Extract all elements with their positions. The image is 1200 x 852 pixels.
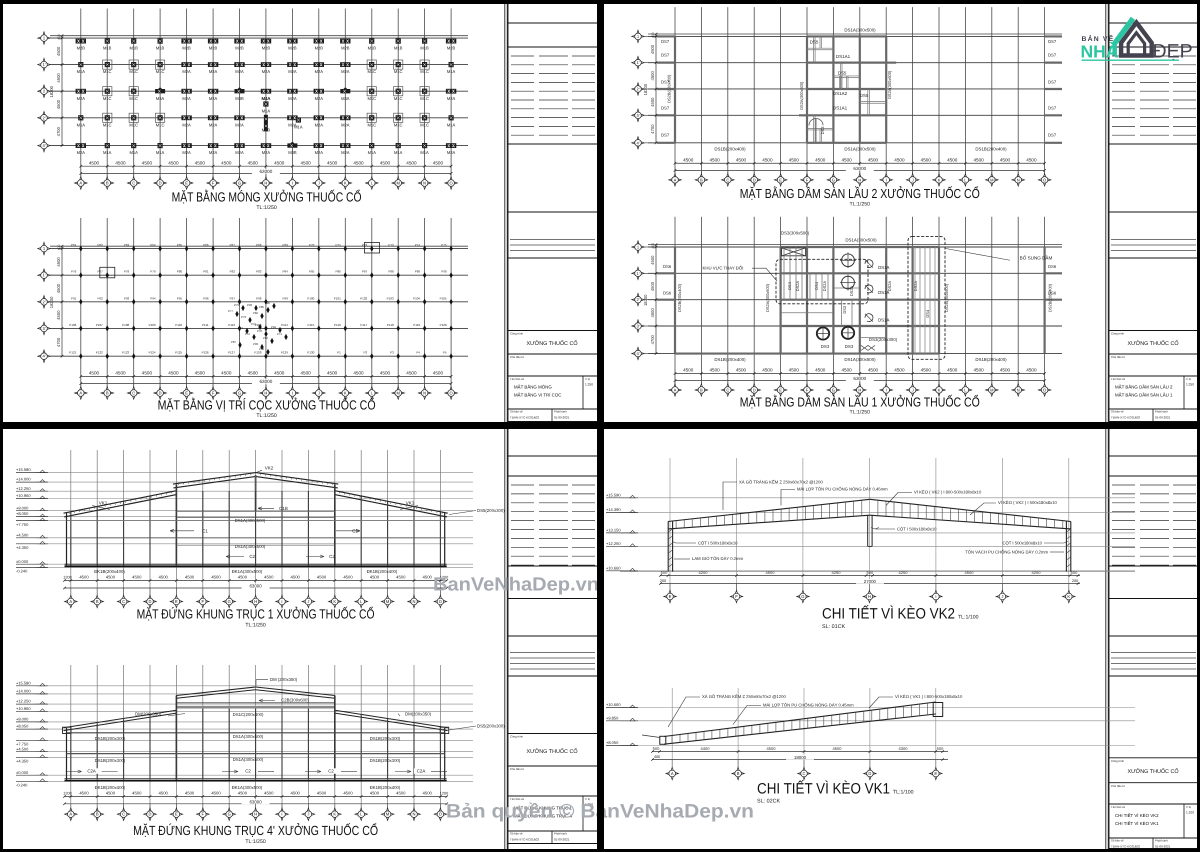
svg-text:P128: P128	[254, 351, 261, 355]
svg-text:B: B	[700, 387, 703, 392]
svg-text:4500: 4500	[56, 283, 61, 293]
svg-text:DS1A(300x500): DS1A(300x500)	[844, 147, 876, 152]
svg-text:±0.000: ±0.000	[16, 770, 29, 775]
svg-text:M1B: M1B	[156, 46, 165, 51]
svg-text:P126: P126	[202, 351, 209, 355]
svg-text:DS2B(200x400): DS2B(200x400)	[677, 283, 682, 312]
svg-text:+8.050: +8.050	[16, 724, 29, 729]
svg-text:P87: P87	[231, 340, 236, 344]
svg-text:O: O	[1043, 177, 1046, 182]
svg-text:M2A: M2A	[447, 96, 456, 101]
svg-text:M2A: M2A	[209, 96, 218, 101]
svg-text:1200: 1200	[440, 792, 448, 796]
svg-text:P106: P106	[69, 323, 76, 327]
svg-text:M1C: M1C	[420, 69, 429, 74]
svg-text:4500: 4500	[185, 575, 195, 580]
svg-text:M1A: M1A	[156, 150, 165, 155]
svg-text:4500: 4500	[142, 160, 153, 165]
svg-text:4500: 4500	[56, 310, 61, 320]
svg-text:TBHN-XTC-KC01&02: TBHN-XTC-KC01&02	[510, 416, 539, 420]
svg-text:4500: 4500	[868, 368, 879, 373]
svg-text:DS3(200x300): DS3(200x300)	[869, 337, 898, 342]
svg-text:M2A: M2A	[235, 122, 244, 127]
svg-text:P87: P87	[362, 270, 368, 274]
svg-text:I: I	[292, 391, 293, 396]
svg-text:+14.000: +14.000	[16, 689, 31, 694]
svg-text:Chủ đầu tư: Chủ đầu tư	[1111, 784, 1125, 788]
svg-text:4500: 4500	[396, 791, 406, 796]
svg-text:M1C: M1C	[394, 122, 403, 127]
svg-text:4500: 4500	[973, 368, 984, 373]
svg-text:4400: 4400	[701, 746, 711, 751]
svg-text:TBHN-XTC-KC01&02: TBHN-XTC-KC01&02	[1111, 845, 1140, 849]
svg-text:4500: 4500	[56, 99, 61, 109]
svg-text:K: K	[333, 599, 336, 604]
svg-text:M: M	[386, 812, 390, 817]
svg-text:J: J	[318, 391, 320, 396]
svg-text:P89: P89	[415, 270, 421, 274]
svg-text:P71: P71	[335, 243, 341, 247]
svg-text:4500: 4500	[353, 371, 364, 376]
svg-text:M1B: M1B	[368, 46, 377, 51]
svg-text:2': 2'	[636, 297, 639, 302]
svg-text:MẶT BẰNG MÓNG XƯỞNG THUỐC CỔ: MẶT BẰNG MÓNG XƯỞNG THUỐC CỔ	[172, 190, 362, 205]
svg-text:M2B: M2B	[262, 46, 271, 51]
svg-text:P90: P90	[441, 270, 447, 274]
svg-text:P73: P73	[241, 315, 246, 319]
svg-text:4250: 4250	[899, 570, 909, 575]
svg-text:P71: P71	[277, 332, 282, 336]
svg-text:200: 200	[1072, 579, 1078, 583]
svg-text:4500: 4500	[274, 371, 285, 376]
svg-text:4500: 4500	[1000, 157, 1011, 162]
svg-text:DS2A: DS2A	[887, 281, 892, 292]
svg-text:M2A: M2A	[288, 96, 297, 101]
svg-text:P2: P2	[364, 351, 368, 355]
svg-text:M: M	[990, 177, 994, 182]
svg-text:C: C	[726, 177, 729, 182]
svg-text:P62: P62	[97, 243, 103, 247]
svg-text:DS3(300x500): DS3(300x500)	[781, 230, 810, 235]
svg-text:4500: 4500	[396, 575, 406, 580]
svg-text:P130: P130	[307, 351, 314, 355]
svg-text:+15.590: +15.590	[606, 492, 621, 497]
svg-text:4': 4'	[636, 140, 639, 145]
svg-text:DS1B(200x400): DS1B(200x400)	[975, 357, 1007, 362]
svg-text:DS2B(200x400): DS2B(200x400)	[1048, 283, 1053, 312]
svg-text:4500: 4500	[211, 575, 221, 580]
svg-text:A: A	[79, 181, 82, 186]
svg-text:M3B: M3B	[288, 150, 297, 155]
svg-text:P85: P85	[259, 305, 264, 309]
svg-text:O: O	[450, 391, 453, 396]
svg-text:ĐẸP: ĐẸP	[1153, 41, 1193, 63]
svg-text:M1A: M1A	[447, 122, 456, 127]
svg-text:K: K	[344, 181, 347, 186]
svg-text:-0.240: -0.240	[16, 783, 28, 788]
svg-text:DS2A: DS2A	[795, 281, 800, 292]
svg-text:J: J	[912, 387, 914, 392]
svg-text:P94: P94	[271, 325, 276, 329]
svg-text:ĐK1B(200x400): ĐK1B(200x400)	[370, 785, 401, 790]
svg-text:4250: 4250	[832, 570, 842, 575]
svg-text:CỘT I 500x180x8x10: CỘT I 500x180x8x10	[897, 526, 937, 531]
svg-text:O: O	[450, 181, 453, 186]
svg-text:M: M	[386, 599, 390, 604]
svg-text:DS1A(300x500): DS1A(300x500)	[235, 544, 266, 549]
svg-text:500: 500	[867, 570, 874, 575]
svg-text:TBHN-XTC-KC01&02: TBHN-XTC-KC01&02	[1111, 416, 1140, 420]
svg-text:3': 3'	[42, 326, 45, 331]
svg-text:2': 2'	[42, 299, 45, 304]
svg-text:DS2A: DS2A	[913, 281, 918, 292]
svg-text:4500: 4500	[195, 160, 206, 165]
svg-text:+14.390: +14.390	[606, 507, 621, 512]
svg-text:A: A	[69, 812, 72, 817]
svg-text:Chủ đầu tư: Chủ đầu tư	[510, 767, 524, 771]
svg-text:P88: P88	[388, 270, 394, 274]
svg-text:4500: 4500	[868, 157, 879, 162]
svg-text:4500: 4500	[650, 255, 655, 265]
svg-text:BanVeNhaDep.vn: BanVeNhaDep.vn	[433, 575, 599, 596]
svg-text:DS7: DS7	[1048, 79, 1057, 84]
svg-text:4500: 4500	[841, 368, 852, 373]
svg-text:4500: 4500	[380, 160, 391, 165]
svg-text:+4.500: +4.500	[16, 746, 29, 751]
svg-text:P116: P116	[334, 323, 341, 327]
svg-text:DS1A(300x500): DS1A(300x500)	[233, 757, 264, 762]
svg-text:M1A: M1A	[368, 150, 377, 155]
svg-text:4500: 4500	[115, 371, 126, 376]
svg-text:4500: 4500	[132, 575, 142, 580]
svg-text:M1A: M1A	[447, 69, 456, 74]
svg-text:DS1A(300x500): DS1A(300x500)	[845, 238, 877, 243]
svg-text:B: B	[106, 181, 109, 186]
svg-text:P69: P69	[283, 243, 289, 247]
svg-text:DS1A2: DS1A2	[833, 91, 848, 96]
svg-text:C2: C2	[329, 554, 335, 559]
svg-text:DM(200x350): DM(200x350)	[135, 711, 162, 716]
svg-text:DS1A(300x500): DS1A(300x500)	[235, 518, 266, 523]
svg-text:63000: 63000	[853, 166, 866, 171]
svg-text:DS7: DS7	[661, 132, 670, 137]
svg-text:4500: 4500	[789, 157, 800, 162]
svg-text:P82: P82	[263, 336, 268, 340]
svg-text:P100: P100	[307, 296, 314, 300]
svg-text:63000: 63000	[853, 376, 866, 381]
svg-text:M1C: M1C	[367, 69, 376, 74]
svg-text:P99: P99	[253, 342, 258, 346]
svg-text:4500: 4500	[327, 371, 338, 376]
svg-text:P75: P75	[441, 243, 447, 247]
svg-text:M1C: M1C	[129, 122, 138, 127]
svg-text:TBHN-XTC-KC01&02: TBHN-XTC-KC01&02	[510, 838, 539, 842]
svg-text:4500: 4500	[343, 575, 353, 580]
svg-text:4500: 4500	[56, 257, 61, 267]
svg-text:M: M	[990, 387, 994, 392]
svg-text:M1C: M1C	[394, 69, 403, 74]
svg-text:C: C	[803, 771, 806, 776]
svg-text:01-09-2021: 01-09-2021	[1155, 845, 1171, 849]
svg-text:TL:1/250: TL:1/250	[245, 623, 266, 629]
svg-text:3': 3'	[636, 113, 639, 118]
svg-text:4500: 4500	[159, 575, 169, 580]
svg-text:200: 200	[660, 579, 666, 583]
svg-text:B: B	[737, 771, 740, 776]
svg-text:+10.960: +10.960	[16, 706, 31, 711]
svg-text:4700: 4700	[650, 334, 655, 344]
svg-text:4500: 4500	[406, 371, 417, 376]
svg-text:P119: P119	[413, 323, 420, 327]
svg-text:H: H	[264, 391, 267, 396]
svg-text:N: N	[423, 391, 426, 396]
svg-text:M2A: M2A	[341, 69, 350, 74]
svg-text:TÔN VÁCH PU CHỐNG NÓNG DÀY 0.2: TÔN VÁCH PU CHỐNG NÓNG DÀY 0.2mm	[965, 549, 1048, 554]
svg-text:M: M	[396, 391, 400, 396]
svg-text:I: I	[886, 177, 887, 182]
svg-text:P118: P118	[387, 323, 394, 327]
svg-text:400: 400	[654, 755, 660, 759]
svg-text:M2B: M2B	[315, 46, 324, 51]
svg-text:P76: P76	[71, 270, 77, 274]
svg-text:M2A: M2A	[447, 150, 456, 155]
svg-text:DS1A(300x500): DS1A(300x500)	[844, 357, 876, 362]
svg-text:4500: 4500	[264, 791, 274, 796]
svg-text:Phát hành: Phát hành	[1155, 839, 1168, 843]
svg-text:DS3: DS3	[842, 305, 847, 313]
svg-text:K: K	[344, 391, 347, 396]
svg-text:J: J	[1001, 594, 1003, 599]
svg-text:XƯỞNG THUỐC CỔ: XƯỞNG THUỐC CỔ	[526, 340, 577, 347]
svg-text:P91: P91	[71, 296, 77, 300]
svg-text:4500: 4500	[650, 71, 655, 81]
svg-text:P72: P72	[245, 332, 250, 336]
svg-text:4500: 4500	[815, 368, 826, 373]
svg-text:MẶT BẰNG DẦM SÀN LẦU 1: MẶT BẰNG DẦM SÀN LẦU 1	[1115, 393, 1173, 398]
svg-text:1:250: 1:250	[585, 383, 593, 387]
svg-text:DS2A: DS2A	[849, 285, 854, 296]
svg-text:63000: 63000	[260, 169, 273, 174]
svg-text:4500: 4500	[683, 368, 694, 373]
svg-text:DS5: DS5	[838, 70, 847, 75]
svg-text:G: G	[832, 387, 835, 392]
svg-text:P72: P72	[251, 322, 256, 326]
svg-text:P93: P93	[247, 303, 252, 307]
svg-text:400: 400	[651, 32, 655, 38]
svg-text:DS4: DS4	[925, 309, 930, 317]
svg-text:DS1A(300x500): DS1A(300x500)	[844, 27, 876, 32]
svg-text:M1C: M1C	[367, 122, 376, 127]
svg-text:D: D	[159, 391, 162, 396]
svg-text:P79: P79	[259, 347, 264, 351]
svg-text:4500: 4500	[815, 157, 826, 162]
svg-text:4500: 4500	[406, 160, 417, 165]
svg-text:D: D	[753, 387, 756, 392]
svg-text:P3: P3	[390, 351, 394, 355]
svg-text:G: G	[238, 181, 241, 186]
svg-text:DS1B(200x400): DS1B(200x400)	[975, 147, 1007, 152]
svg-text:Tên bản vẽ: Tên bản vẽ	[510, 377, 524, 381]
svg-text:P121: P121	[69, 351, 76, 355]
svg-text:XÀ GỒ TRÁNG KẼM Z 250x60x70x2: XÀ GỒ TRÁNG KẼM Z 250x60x70x2 @1200	[739, 479, 823, 484]
svg-text:M1A: M1A	[394, 150, 403, 155]
svg-text:CỘT I 500x180x8x10: CỘT I 500x180x8x10	[1003, 540, 1043, 545]
svg-text:D: D	[149, 599, 152, 604]
svg-text:M2A: M2A	[315, 69, 324, 74]
svg-text:SL: 02CK: SL: 02CK	[757, 799, 780, 805]
svg-text:P94: P94	[150, 296, 156, 300]
svg-text:P125: P125	[175, 351, 182, 355]
svg-text:400: 400	[651, 243, 655, 249]
svg-text:DS6: DS6	[663, 264, 672, 269]
svg-text:M1C: M1C	[129, 69, 138, 74]
svg-text:4700: 4700	[56, 126, 61, 136]
svg-text:4500: 4500	[264, 575, 274, 580]
svg-text:P61: P61	[71, 243, 77, 247]
svg-text:400: 400	[57, 34, 61, 40]
svg-text:P79: P79	[150, 270, 156, 274]
svg-text:4500: 4500	[89, 160, 100, 165]
svg-text:E: E	[779, 387, 782, 392]
svg-text:18200: 18200	[643, 83, 648, 95]
svg-text:4700: 4700	[56, 337, 61, 347]
svg-text:+12.250: +12.250	[16, 699, 31, 704]
svg-text:O: O	[1043, 387, 1046, 392]
svg-text:4500: 4500	[211, 791, 221, 796]
svg-text:Số bản vẽ: Số bản vẽ	[510, 410, 523, 414]
svg-text:18200: 18200	[49, 85, 54, 97]
svg-text:4500: 4500	[841, 157, 852, 162]
svg-text:+12.250: +12.250	[16, 486, 31, 491]
svg-text:M: M	[396, 181, 400, 186]
svg-text:DM(200x350): DM(200x350)	[405, 711, 432, 716]
svg-text:4500: 4500	[789, 368, 800, 373]
svg-text:63000: 63000	[260, 379, 273, 384]
svg-text:M2A: M2A	[235, 150, 244, 155]
svg-text:P97: P97	[230, 296, 236, 300]
svg-text:DS6: DS6	[663, 290, 672, 295]
svg-text:P95: P95	[265, 301, 270, 305]
svg-text:M2A: M2A	[315, 122, 324, 127]
svg-text:4500: 4500	[106, 791, 116, 796]
svg-text:TL:1/250: TL:1/250	[256, 413, 277, 419]
svg-text:CHI TIẾT VÌ KÈO VK2: CHI TIẾT VÌ KÈO VK2	[1115, 813, 1159, 818]
svg-text:4500: 4500	[221, 160, 232, 165]
svg-text:P85: P85	[309, 270, 315, 274]
svg-text:M1B: M1B	[394, 46, 403, 51]
svg-text:1': 1'	[636, 271, 639, 276]
svg-text:MẶT BẰNG DẦM SÀN LẦU 2: MẶT BẰNG DẦM SÀN LẦU 2	[1115, 385, 1173, 390]
svg-text:01-09-2021: 01-09-2021	[554, 838, 570, 842]
svg-text:4300: 4300	[899, 746, 909, 751]
svg-text:J: J	[318, 181, 320, 186]
svg-text:M1C: M1C	[420, 122, 429, 127]
svg-text:P95: P95	[177, 296, 183, 300]
svg-text:4500: 4500	[433, 371, 444, 376]
svg-text:N: N	[423, 181, 426, 186]
svg-text:DS6: DS6	[1048, 264, 1057, 269]
svg-text:P102: P102	[360, 296, 367, 300]
svg-text:+13.150: +13.150	[606, 528, 621, 533]
svg-text:VÌ KÈO ( VK2 ) I 500x180x8x10: VÌ KÈO ( VK2 ) I 500x180x8x10	[998, 500, 1058, 505]
svg-text:P70: P70	[257, 329, 262, 333]
svg-text:M2A: M2A	[209, 150, 218, 155]
svg-text:M1C: M1C	[129, 96, 138, 101]
svg-text:4500: 4500	[79, 575, 89, 580]
svg-text:M2B: M2B	[341, 46, 350, 51]
svg-text:Tên bản vẽ: Tên bản vẽ	[1111, 805, 1125, 809]
svg-text:G: G	[801, 594, 804, 599]
svg-text:M2A: M2A	[262, 69, 271, 74]
svg-text:M1A: M1A	[294, 125, 303, 130]
svg-text:I: I	[292, 181, 293, 186]
svg-text:4500: 4500	[921, 157, 932, 162]
svg-text:DS4: DS4	[787, 281, 792, 289]
svg-text:4500: 4500	[370, 791, 380, 796]
svg-text:+9.000: +9.000	[16, 717, 29, 722]
svg-text:O: O	[439, 812, 442, 817]
svg-text:P124: P124	[149, 351, 156, 355]
svg-text:P65: P65	[177, 243, 183, 247]
svg-text:P123: P123	[122, 351, 129, 355]
svg-text:M3B: M3B	[235, 96, 244, 101]
svg-text:P80: P80	[177, 270, 183, 274]
svg-text:P83: P83	[256, 270, 262, 274]
svg-text:M1C: M1C	[367, 96, 376, 101]
svg-text:DS7: DS7	[661, 39, 670, 44]
svg-text:P63: P63	[124, 243, 130, 247]
svg-text:500: 500	[653, 746, 660, 751]
svg-text:N: N	[1017, 177, 1020, 182]
svg-text:+12.250: +12.250	[606, 541, 621, 546]
svg-text:G: G	[228, 599, 231, 604]
svg-text:P112: P112	[228, 323, 235, 327]
svg-text:ĐK1B(200x400): ĐK1B(200x400)	[367, 569, 398, 574]
svg-text:M1C: M1C	[156, 122, 165, 127]
svg-text:M2A: M2A	[182, 69, 191, 74]
svg-text:4200: 4200	[1032, 570, 1042, 575]
svg-text:M1B: M1B	[103, 46, 112, 51]
svg-text:D: D	[149, 812, 152, 817]
svg-text:TL:1/250: TL:1/250	[850, 202, 871, 208]
svg-text:4500: 4500	[238, 575, 248, 580]
svg-text:M1B: M1B	[420, 46, 429, 51]
svg-text:VK1: VK1	[406, 501, 415, 506]
svg-text:Phát hành: Phát hành	[554, 832, 567, 836]
svg-text:DS7: DS7	[661, 79, 670, 84]
svg-text:1200: 1200	[63, 792, 71, 796]
svg-text:+8.050: +8.050	[16, 511, 29, 516]
svg-text:4500: 4500	[142, 371, 153, 376]
svg-text:4500: 4500	[683, 157, 694, 162]
svg-text:4': 4'	[42, 143, 45, 148]
svg-text:+10.960: +10.960	[16, 493, 31, 498]
svg-text:M1C: M1C	[103, 122, 112, 127]
svg-text:K: K	[938, 177, 941, 182]
svg-text:DS4: DS4	[814, 281, 819, 289]
svg-text:D: D	[868, 771, 871, 776]
svg-text:C: C	[726, 387, 729, 392]
svg-text:1': 1'	[42, 273, 45, 278]
svg-text:P103: P103	[387, 296, 394, 300]
svg-text:4500: 4500	[132, 791, 142, 796]
svg-text:4500: 4500	[767, 746, 777, 751]
svg-text:DS1B(200x300): DS1B(200x300)	[370, 758, 401, 763]
svg-text:Công trình: Công trình	[510, 332, 524, 336]
svg-text:+15.580: +15.580	[16, 680, 31, 685]
svg-text:Phát hành: Phát hành	[1155, 410, 1168, 414]
svg-text:4500: 4500	[168, 160, 179, 165]
